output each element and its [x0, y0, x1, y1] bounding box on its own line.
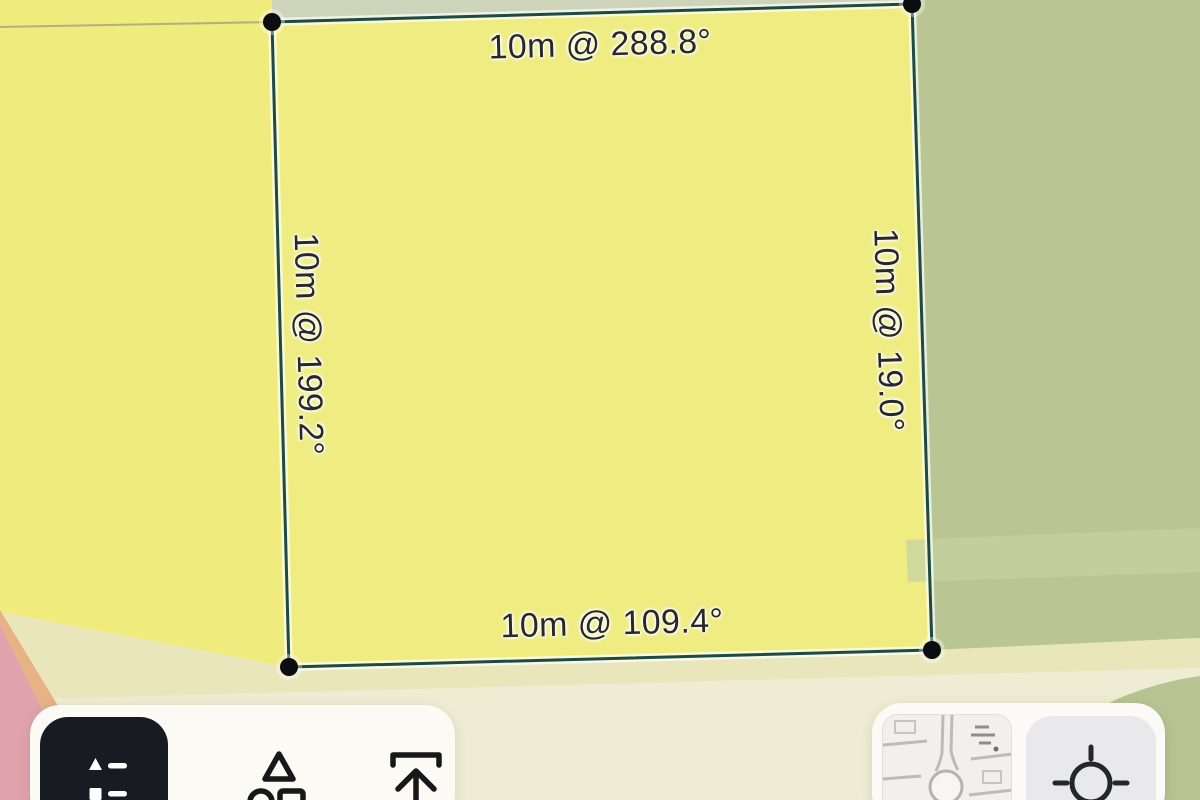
vertex-handle-bottom-right[interactable] — [923, 641, 941, 659]
measure-polygon[interactable] — [272, 4, 932, 667]
vertex-handle-bottom-left[interactable] — [280, 658, 298, 676]
legend-list-icon — [81, 754, 127, 800]
edge-label-top: 10m @ 288.8° — [488, 22, 712, 67]
export-button[interactable] — [368, 705, 464, 800]
edge-label-bottom: 10m @ 109.4° — [500, 602, 724, 647]
locate-button[interactable] — [1026, 716, 1156, 800]
basemap-button[interactable] — [882, 714, 1012, 800]
basemap-thumbnail — [883, 715, 1012, 800]
map-widget-group — [872, 703, 1165, 800]
edge-label-left: 10m @ 199.2° — [286, 232, 331, 456]
vertex-handle-top-left[interactable] — [263, 13, 281, 31]
map-layers — [0, 0, 1200, 800]
shapes-icon — [246, 747, 310, 800]
edge-label-right: 10m @ 19.0° — [865, 228, 910, 433]
export-up-icon — [385, 747, 447, 800]
map-canvas[interactable]: 10m @ 288.8° 10m @ 199.2° 10m @ 19.0° 10… — [0, 0, 1200, 800]
legend-button[interactable] — [40, 717, 168, 800]
locate-crosshair-icon — [1043, 739, 1139, 800]
bottom-toolbar — [30, 705, 455, 800]
measure-polygon-casing — [272, 4, 932, 667]
shapes-button[interactable] — [230, 705, 326, 800]
